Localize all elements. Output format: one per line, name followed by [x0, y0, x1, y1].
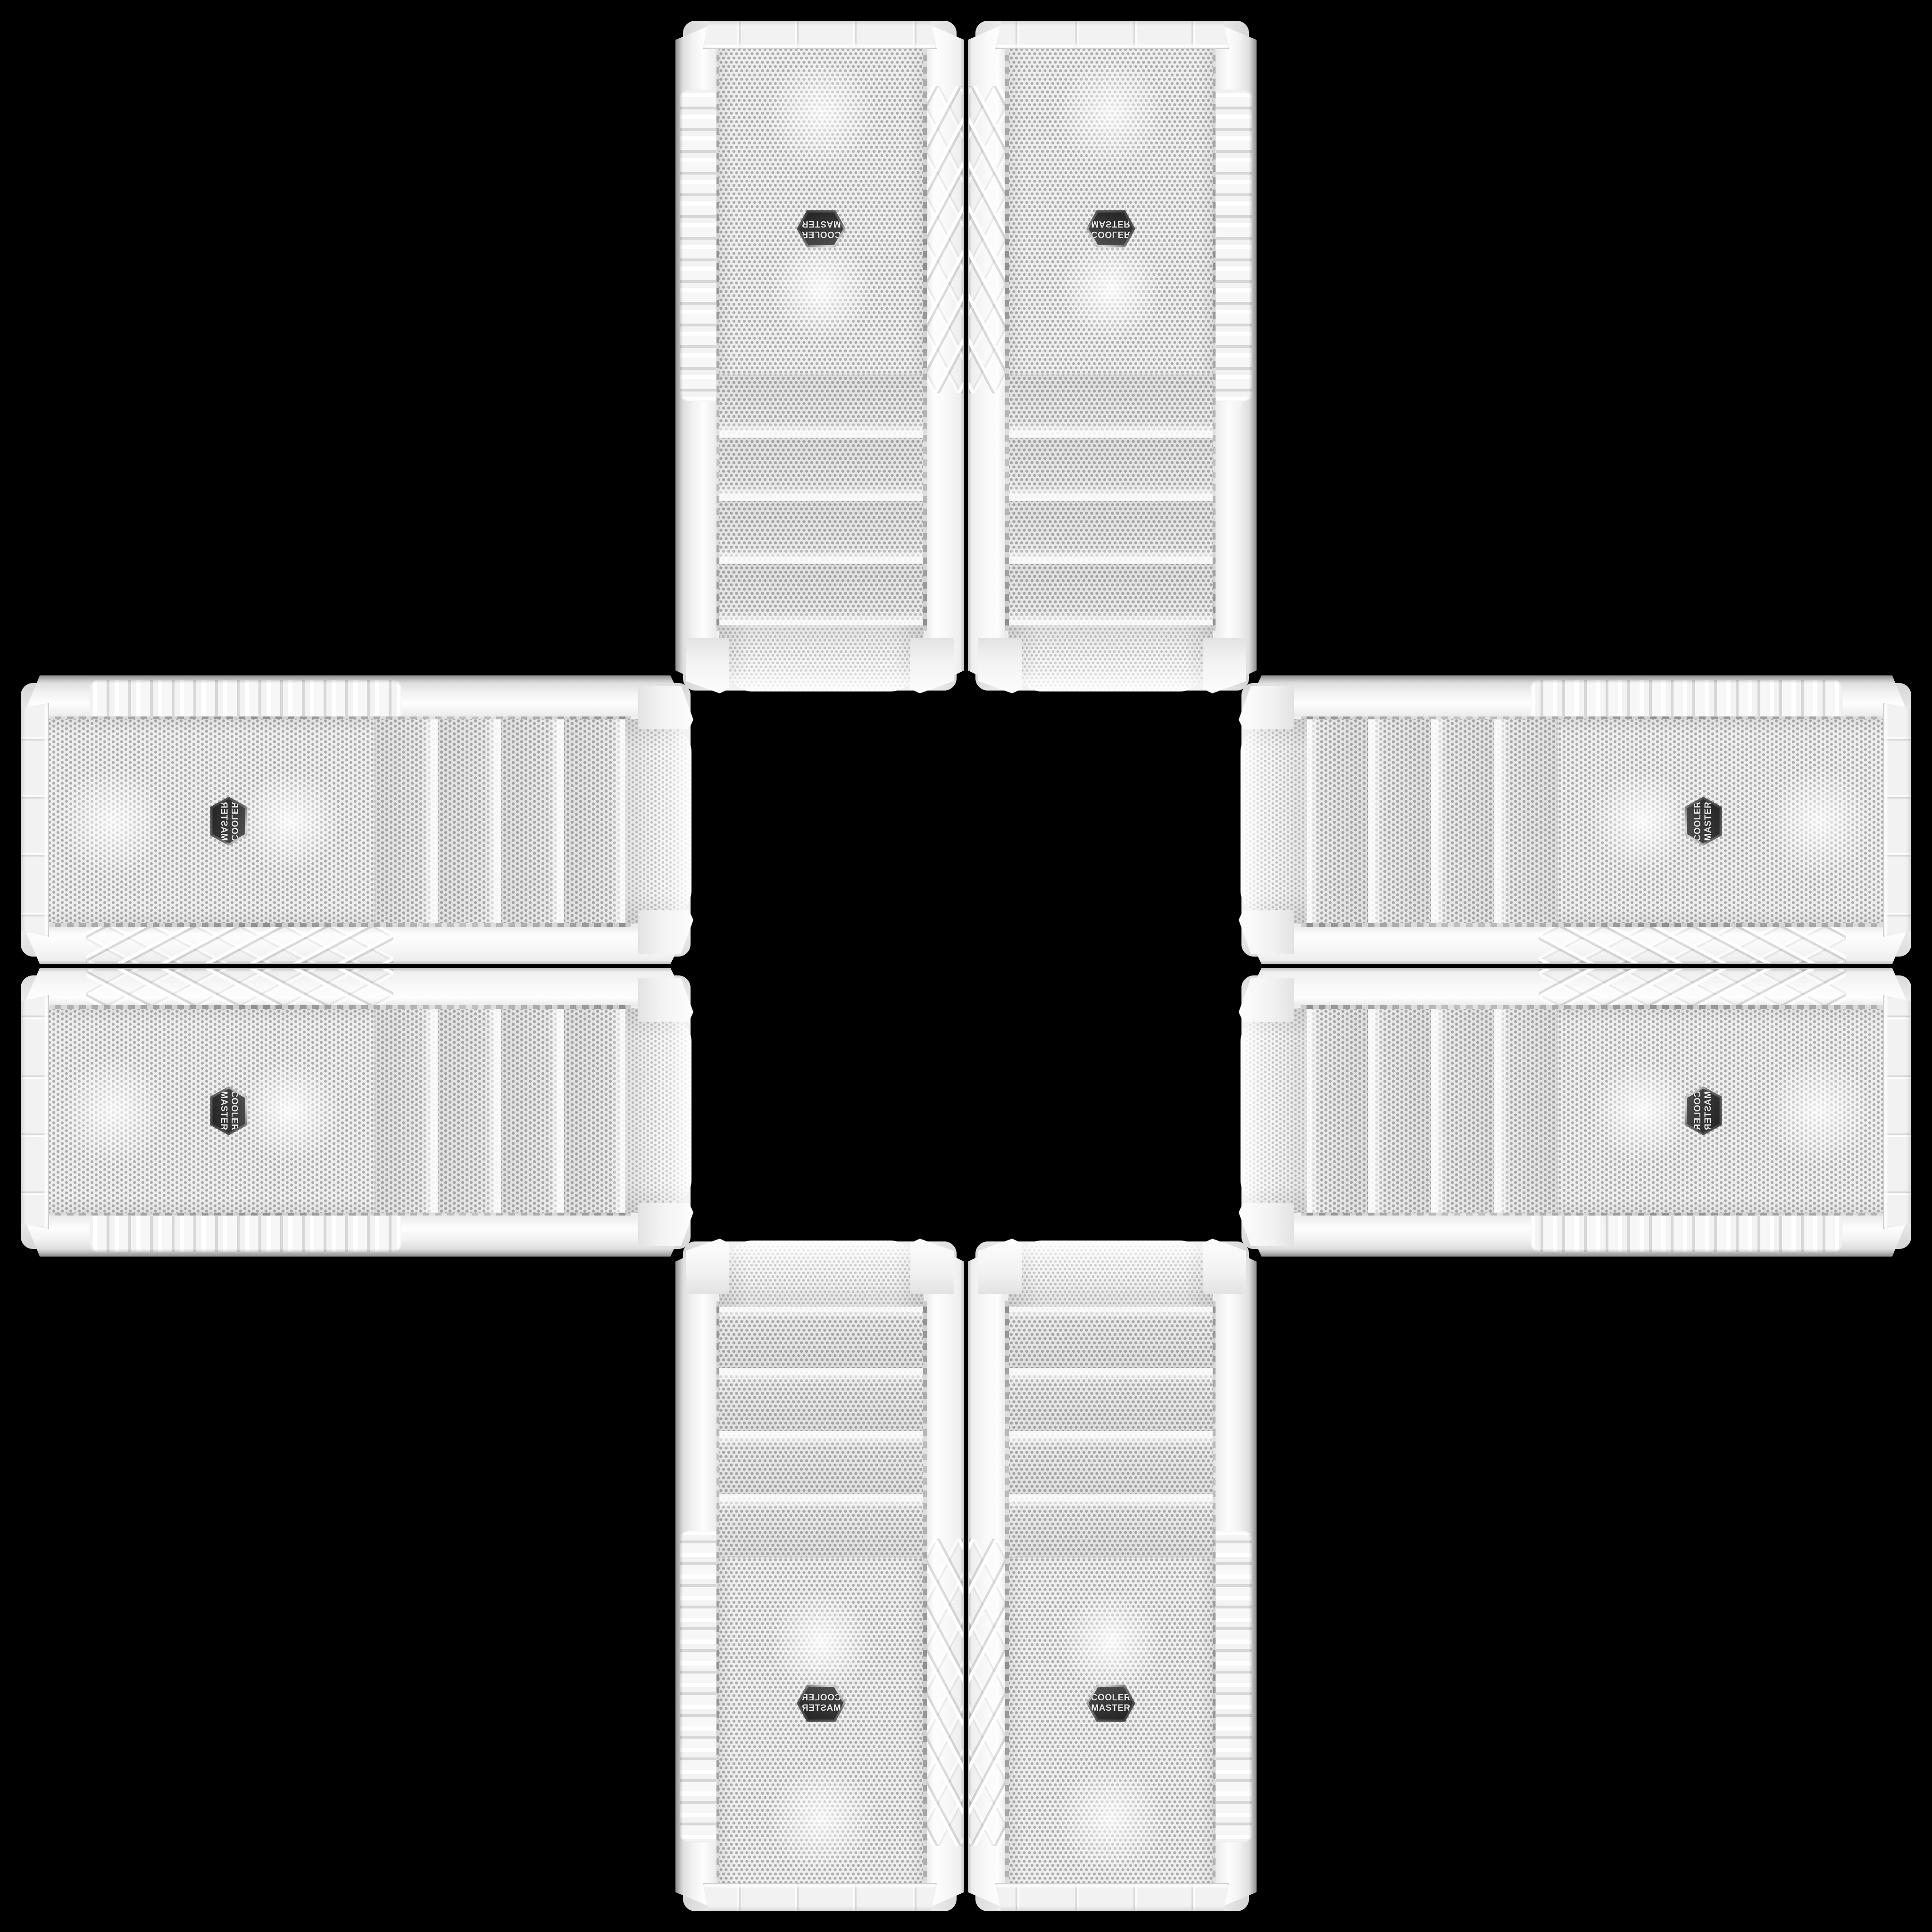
chevron-grip-texture: [969, 86, 1005, 393]
pc-case-right-bottom: COOLER MASTER: [1239, 968, 1913, 1257]
drive-bay-cover: [501, 1009, 562, 1213]
badge-line2: MASTER: [218, 801, 229, 841]
bottom-trim-band: [995, 21, 1229, 49]
drive-bay-cover: [1496, 1009, 1557, 1213]
pc-case-left-bottom: COOLER MASTER: [19, 968, 693, 1257]
bottom-trim-band: [703, 1883, 937, 1911]
drive-bay-cover: [1433, 1009, 1494, 1213]
front-bezel-rail-right: [1216, 1239, 1257, 1913]
drive-bay-area: [719, 375, 923, 625]
pc-case-slot-top-left: COOLER MASTER: [675, 19, 964, 693]
drive-bay-cover: [1009, 1307, 1213, 1368]
front-mesh-panel: COOLER MASTER: [1009, 48, 1213, 375]
front-bezel-rail-left: [968, 1239, 1007, 1913]
front-bezel-rail-left: [925, 19, 964, 693]
drive-bay-cover: [719, 1307, 923, 1368]
badge-face: COOLER MASTER: [799, 212, 843, 246]
pc-case-slot-bottom-right: COOLER MASTER: [968, 1239, 1257, 1913]
badge-line1: COOLER: [1091, 229, 1131, 239]
pc-case-top-right: COOLER MASTER: [968, 19, 1257, 693]
chrome-trim-left: [923, 1301, 927, 1886]
front-bezel-rail-right: [19, 1216, 693, 1257]
cooler-master-badge-icon: COOLER MASTER: [797, 1684, 846, 1723]
badge-face: COOLER MASTER: [212, 1089, 246, 1133]
cooler-master-badge-icon: COOLER MASTER: [209, 797, 248, 846]
front-bezel-rail-right: [1239, 675, 1913, 716]
drive-bay-cover: [564, 1009, 625, 1213]
drive-bay-cover: [375, 719, 436, 923]
pc-case-slot-left-top: COOLER MASTER: [19, 675, 693, 964]
badge-line1: COOLER: [229, 801, 239, 841]
badge-line2: MASTER: [218, 1091, 229, 1130]
ribbed-grip-texture: [1531, 680, 1842, 718]
badge-line1: COOLER: [1693, 1091, 1703, 1131]
chrome-trim-left: [46, 1005, 631, 1009]
bottom-trim-band: [1883, 703, 1911, 937]
drive-bay-cover: [375, 1009, 436, 1213]
chevron-grip-texture: [86, 969, 393, 1005]
front-bezel-rail-left: [1239, 968, 1913, 1007]
cooler-master-badge-icon: COOLER MASTER: [1684, 1086, 1723, 1135]
cooler-master-badge-icon: COOLER MASTER: [1086, 1684, 1135, 1723]
badge-line1: COOLER: [801, 229, 841, 239]
top-mesh-roll: [1008, 625, 1213, 691]
chevron-grip-texture: [86, 927, 393, 963]
front-bezel-rail-left: [925, 1239, 964, 1913]
badge-line2: MASTER: [801, 218, 841, 229]
drive-bay-cover: [1370, 1009, 1431, 1213]
front-mesh-panel: COOLER MASTER: [1557, 719, 1884, 923]
front-mesh-panel: COOLER MASTER: [48, 719, 375, 923]
badge-face: COOLER MASTER: [1089, 1686, 1133, 1720]
pc-case-bottom-left: COOLER MASTER: [675, 1239, 964, 1913]
pc-case-slot-right-top: COOLER MASTER: [1239, 675, 1913, 964]
drive-bay-cover: [1433, 719, 1494, 923]
top-mesh-roll: [1241, 719, 1307, 924]
pc-case-slot-left-bottom: COOLER MASTER: [19, 968, 693, 1257]
top-mesh-roll: [719, 625, 924, 691]
top-mesh-roll: [625, 1008, 691, 1213]
drive-bay-cover: [438, 719, 499, 923]
drive-bay-cover: [719, 1370, 923, 1431]
drive-bay-cover: [719, 438, 923, 499]
drive-bay-cover: [1009, 1370, 1213, 1431]
ribbed-grip-texture: [90, 680, 401, 718]
front-mesh-panel: COOLER MASTER: [1557, 1009, 1884, 1213]
drive-bay-cover: [501, 719, 562, 923]
drive-bay-cover: [1009, 1496, 1213, 1557]
front-bezel-rail-right: [1239, 1216, 1913, 1257]
drive-bay-cover: [1370, 719, 1431, 923]
badge-face: COOLER MASTER: [799, 1686, 843, 1720]
chevron-grip-texture: [1539, 927, 1846, 963]
side-panel-edge: [25, 1249, 687, 1257]
chrome-trim-left: [1301, 1005, 1886, 1009]
badge-face: COOLER MASTER: [1686, 1089, 1720, 1133]
badge-line2: MASTER: [801, 1703, 841, 1714]
badge-line2: MASTER: [1703, 1091, 1714, 1130]
drive-bay-cover: [1496, 719, 1557, 923]
drive-bay-cover: [719, 375, 923, 436]
badge-face: COOLER MASTER: [1686, 799, 1720, 843]
pc-case-left-top: COOLER MASTER: [19, 675, 693, 964]
drive-bay-cover: [1009, 501, 1213, 562]
drive-bay-area: [1307, 719, 1557, 923]
pc-case-slot-top-right: COOLER MASTER: [968, 19, 1257, 693]
chrome-trim-left: [1005, 46, 1009, 631]
chevron-grip-texture: [927, 1539, 963, 1846]
front-bezel-rail-left: [968, 19, 1007, 693]
cooler-master-badge-icon: COOLER MASTER: [797, 209, 846, 248]
badge-line2: MASTER: [1091, 218, 1130, 229]
drive-bay-cover: [564, 719, 625, 923]
drive-bay-cover: [719, 501, 923, 562]
drive-bay-cover: [1009, 375, 1213, 436]
badge-line1: COOLER: [1091, 1693, 1131, 1703]
drive-bay-area: [1009, 375, 1213, 625]
chrome-trim-left: [46, 923, 631, 927]
drive-bay-cover: [438, 1009, 499, 1213]
pc-case-top-left: COOLER MASTER: [675, 19, 964, 693]
chrome-trim-left: [1005, 1301, 1009, 1886]
chevron-grip-texture: [927, 86, 963, 393]
drive-bay-cover: [1307, 1009, 1368, 1213]
front-bezel-rail-left: [19, 925, 693, 964]
front-mesh-panel: COOLER MASTER: [48, 1009, 375, 1213]
front-mesh-panel: COOLER MASTER: [719, 48, 923, 375]
top-mesh-roll: [625, 719, 691, 924]
top-mesh-roll: [719, 1241, 924, 1307]
top-mesh-roll: [1008, 1241, 1213, 1307]
pc-case-right-top: COOLER MASTER: [1239, 675, 1913, 964]
side-panel-edge: [1245, 675, 1907, 683]
side-panel-edge: [675, 1245, 683, 1907]
top-mesh-roll: [1241, 1008, 1307, 1213]
product-montage-canvas: COOLER MASTER: [0, 0, 1932, 1932]
pc-case-bottom-right: COOLER MASTER: [968, 1239, 1257, 1913]
drive-bay-area: [719, 1307, 923, 1557]
drive-bay-area: [1009, 1307, 1213, 1557]
bottom-trim-band: [703, 21, 937, 49]
side-panel-edge: [1249, 25, 1257, 687]
chevron-grip-texture: [969, 1539, 1005, 1846]
bottom-trim-band: [21, 703, 49, 937]
front-mesh-panel: COOLER MASTER: [719, 1557, 923, 1884]
ribbed-grip-texture: [1214, 1531, 1252, 1842]
drive-bay-area: [375, 1009, 625, 1213]
front-bezel-rail-right: [1216, 19, 1257, 693]
side-panel-edge: [1249, 1245, 1257, 1907]
badge-line2: MASTER: [1703, 801, 1714, 841]
badge-line1: COOLER: [229, 1091, 239, 1131]
drive-bay-cover: [1009, 438, 1213, 499]
front-bezel-rail-right: [19, 675, 693, 716]
cooler-master-badge-icon: COOLER MASTER: [1684, 797, 1723, 846]
badge-line2: MASTER: [1091, 1703, 1130, 1714]
drive-bay-cover: [719, 564, 923, 625]
front-mesh-panel: COOLER MASTER: [1009, 1557, 1213, 1884]
front-bezel-rail-right: [675, 19, 716, 693]
drive-bay-cover: [719, 1496, 923, 1557]
drive-bay-cover: [1009, 564, 1213, 625]
ribbed-grip-texture: [680, 90, 718, 401]
drive-bay-cover: [1307, 719, 1368, 923]
drive-bay-area: [375, 719, 625, 923]
badge-line1: COOLER: [801, 1693, 841, 1703]
side-panel-edge: [675, 25, 683, 687]
front-bezel-rail-left: [19, 968, 693, 1007]
pc-case-slot-bottom-left: COOLER MASTER: [675, 1239, 964, 1913]
badge-line1: COOLER: [1693, 801, 1703, 841]
side-panel-edge: [25, 675, 687, 683]
front-bezel-rail-left: [1239, 925, 1913, 964]
drive-bay-area: [1307, 1009, 1557, 1213]
ribbed-grip-texture: [680, 1531, 718, 1842]
badge-face: COOLER MASTER: [1089, 212, 1133, 246]
pc-case-slot-right-bottom: COOLER MASTER: [1239, 968, 1913, 1257]
drive-bay-cover: [1009, 1433, 1213, 1494]
bottom-trim-band: [1883, 995, 1911, 1229]
cooler-master-badge-icon: COOLER MASTER: [1086, 209, 1135, 248]
cooler-master-badge-icon: COOLER MASTER: [209, 1086, 248, 1135]
ribbed-grip-texture: [90, 1214, 401, 1252]
ribbed-grip-texture: [1531, 1214, 1842, 1252]
chevron-grip-texture: [1539, 969, 1846, 1005]
bottom-trim-band: [995, 1883, 1229, 1911]
badge-face: COOLER MASTER: [212, 799, 246, 843]
bottom-trim-band: [21, 995, 49, 1229]
front-bezel-rail-right: [675, 1239, 716, 1913]
side-panel-edge: [1245, 1249, 1907, 1257]
ribbed-grip-texture: [1214, 90, 1252, 401]
chrome-trim-left: [923, 46, 927, 631]
drive-bay-cover: [719, 1433, 923, 1494]
chrome-trim-left: [1301, 923, 1886, 927]
